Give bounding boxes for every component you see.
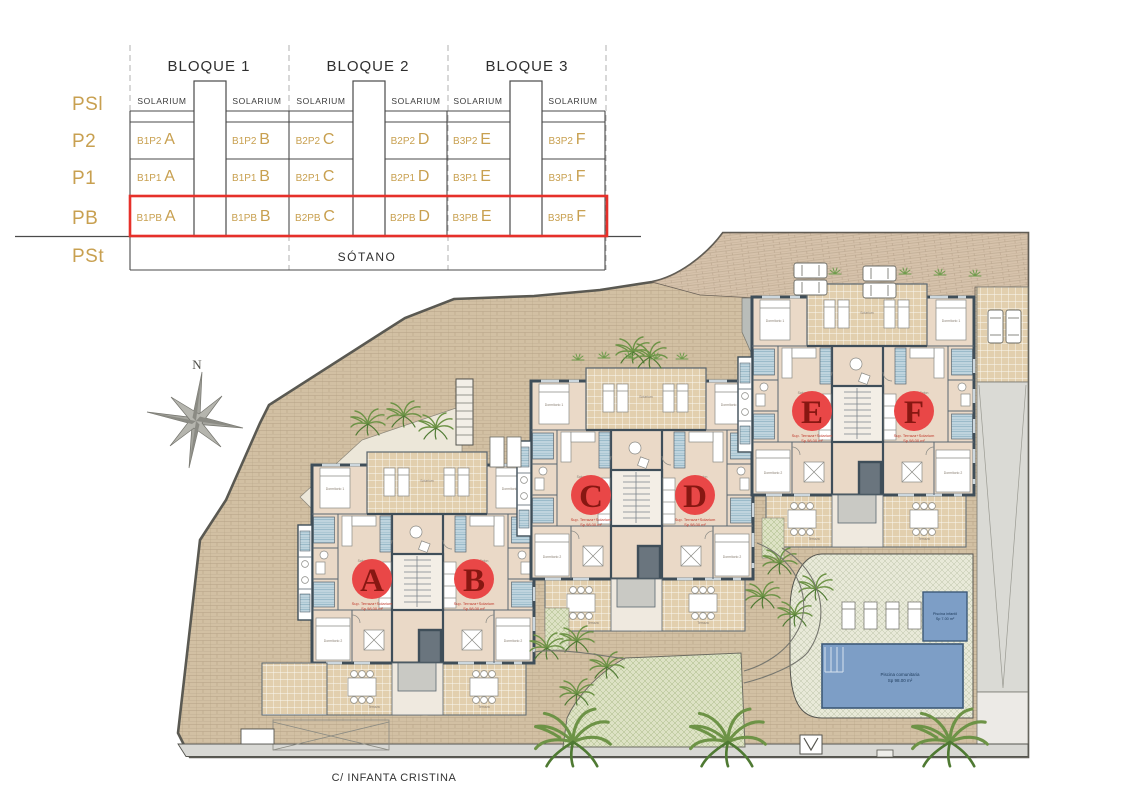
svg-text:C: C bbox=[579, 479, 603, 515]
svg-text:Piscina infantil: Piscina infantil bbox=[933, 612, 957, 616]
svg-text:PSl: PSl bbox=[72, 94, 103, 115]
svg-text:SÓTANO: SÓTANO bbox=[338, 249, 397, 264]
svg-text:SOLARIUM: SOLARIUM bbox=[296, 96, 345, 106]
svg-text:D: D bbox=[683, 479, 707, 515]
svg-text:E: E bbox=[801, 395, 823, 431]
svg-text:Sp 98.00 m²: Sp 98.00 m² bbox=[361, 606, 383, 611]
svg-text:C/ INFANTA CRISTINA: C/ INFANTA CRISTINA bbox=[332, 772, 457, 784]
svg-text:SOLARIUM: SOLARIUM bbox=[391, 96, 440, 106]
svg-text:Sp 98.00 m²: Sp 98.00 m² bbox=[903, 438, 925, 443]
svg-text:B: B bbox=[463, 563, 485, 599]
svg-text:SOLARIUM: SOLARIUM bbox=[548, 96, 597, 106]
svg-text:SOLARIUM: SOLARIUM bbox=[453, 96, 502, 106]
svg-text:BLOQUE 1: BLOQUE 1 bbox=[167, 58, 250, 75]
svg-text:Sp 98.00 m²: Sp 98.00 m² bbox=[801, 438, 823, 443]
svg-text:BLOQUE 3: BLOQUE 3 bbox=[485, 58, 568, 75]
svg-text:Sp 7.00 m²: Sp 7.00 m² bbox=[936, 617, 955, 621]
svg-text:Piscina comunitaria: Piscina comunitaria bbox=[880, 672, 920, 677]
svg-text:PB: PB bbox=[72, 208, 98, 229]
svg-text:F: F bbox=[904, 395, 924, 431]
svg-text:P2: P2 bbox=[72, 131, 96, 152]
svg-text:P1: P1 bbox=[72, 168, 96, 189]
svg-text:SOLARIUM: SOLARIUM bbox=[232, 96, 281, 106]
svg-text:BLOQUE 2: BLOQUE 2 bbox=[326, 58, 409, 75]
svg-text:Sp 98.00 m²: Sp 98.00 m² bbox=[888, 678, 913, 683]
svg-text:PSt: PSt bbox=[72, 246, 104, 267]
svg-text:Sp 98.00 m²: Sp 98.00 m² bbox=[463, 606, 485, 611]
svg-text:Sp 98.00 m²: Sp 98.00 m² bbox=[580, 522, 602, 527]
svg-text:SOLARIUM: SOLARIUM bbox=[137, 96, 186, 106]
svg-text:N: N bbox=[192, 357, 202, 372]
svg-text:Sp 98.00 m²: Sp 98.00 m² bbox=[684, 522, 706, 527]
svg-text:A: A bbox=[360, 563, 384, 599]
